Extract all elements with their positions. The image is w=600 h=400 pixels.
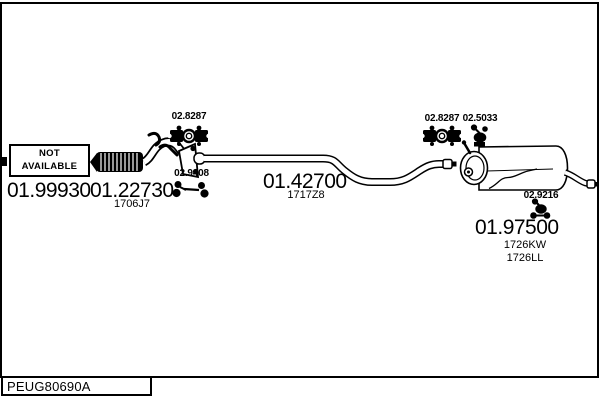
variant-center-pipe: 1717Z8: [280, 190, 332, 201]
variant-flex-pipe: 1706J7: [103, 199, 161, 210]
fitting-code-mount: 02.5033: [452, 114, 508, 124]
variant-rear-silencer-1: 1726KW: [495, 240, 555, 251]
rubber-mount-icon: [471, 125, 487, 146]
not-available-box: NOT AVAILABLE: [9, 144, 90, 177]
not-available-line1: NOT: [39, 148, 60, 161]
not-available-line2: AVAILABLE: [22, 161, 78, 174]
fitting-code-rear-hanger: 02.9216: [513, 191, 569, 201]
fitting-code-clamp-front: 02.8287: [159, 112, 219, 122]
variant-rear-silencer-2: 1726LL: [495, 253, 555, 264]
part-number-front-pipe: 01.99930: [7, 180, 91, 201]
tail-pipe-drawing: [565, 173, 599, 189]
rubber-hanger-pair-icon: [173, 182, 208, 198]
exhaust-diagram-page: NOT AVAILABLE 01.99930 01.22730 1706J7 0…: [0, 0, 600, 400]
left-edge-connector: [0, 157, 7, 166]
fitting-code-hanger-pair: 02.9408: [163, 169, 220, 179]
catalog-code: PEUG80690A: [7, 379, 91, 394]
rear-silencer-drawing: [461, 140, 568, 190]
part-number-rear-silencer: 01.97500: [475, 217, 559, 238]
catalog-code-box: PEUG80690A: [1, 376, 152, 396]
clamp-icon-rear: [420, 126, 463, 146]
